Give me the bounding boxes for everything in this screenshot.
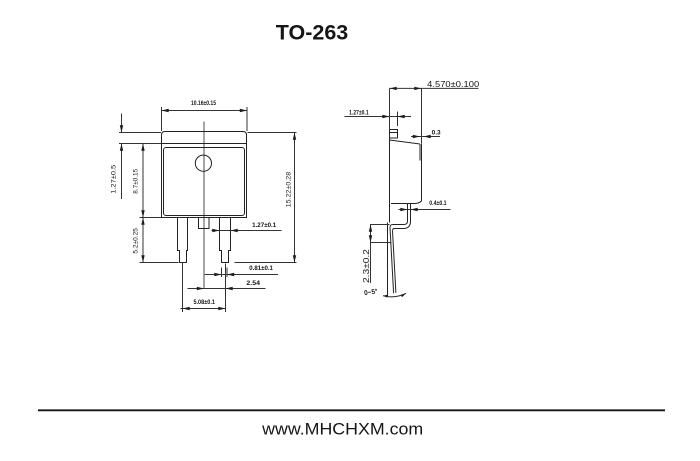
svg-text:5.08±0.1: 5.08±0.1	[193, 299, 215, 306]
svg-text:8.7±0.15: 8.7±0.15	[133, 169, 140, 194]
svg-text:4.570±0.100: 4.570±0.100	[427, 80, 480, 89]
svg-text:1.27±0.1: 1.27±0.1	[349, 110, 369, 116]
svg-text:0.3: 0.3	[432, 130, 441, 137]
svg-text:1.27±0.1: 1.27±0.1	[252, 222, 276, 229]
svg-text:5.2±0.25: 5.2±0.25	[133, 228, 140, 254]
svg-text:2.54: 2.54	[246, 280, 260, 287]
svg-text:0.81±0.1: 0.81±0.1	[249, 265, 273, 272]
svg-text:TO-263: TO-263	[276, 21, 349, 45]
svg-text:www.MHCHXM.com: www.MHCHXM.com	[261, 420, 423, 438]
svg-text:10.16±0.15: 10.16±0.15	[191, 100, 216, 107]
svg-text:15.22±0.28: 15.22±0.28	[285, 172, 292, 208]
svg-text:1.27±0.5: 1.27±0.5	[110, 165, 117, 194]
svg-text:0.4±0.1: 0.4±0.1	[429, 201, 447, 207]
svg-text:2.3±0.2: 2.3±0.2	[362, 248, 371, 283]
